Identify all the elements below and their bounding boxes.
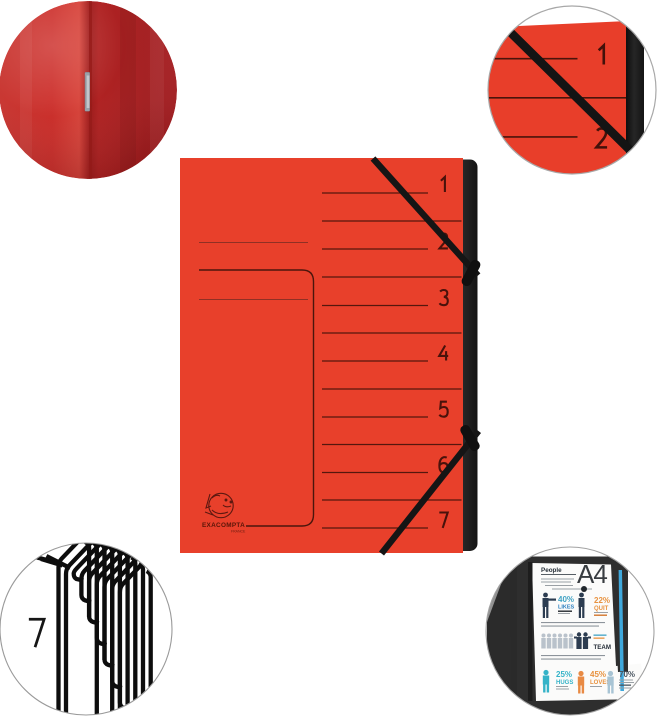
svg-text:45%: 45% (590, 670, 606, 679)
svg-text:A4: A4 (577, 559, 607, 589)
svg-text:People: People (541, 567, 562, 574)
svg-text:TEAM: TEAM (594, 644, 612, 651)
svg-text:QUIT: QUIT (594, 606, 609, 612)
svg-text:70%: 70% (619, 670, 635, 679)
svg-text:HUGS: HUGS (556, 680, 573, 686)
svg-text:25%: 25% (556, 670, 572, 679)
svg-text:LIKES: LIKES (558, 605, 575, 611)
svg-text:40%: 40% (558, 595, 574, 604)
svg-text:22%: 22% (594, 596, 610, 605)
svg-text:LOVES: LOVES (590, 680, 610, 686)
svg-text:FRANCE: FRANCE (231, 530, 246, 534)
svg-text:EXACOMPTA: EXACOMPTA (202, 522, 245, 529)
